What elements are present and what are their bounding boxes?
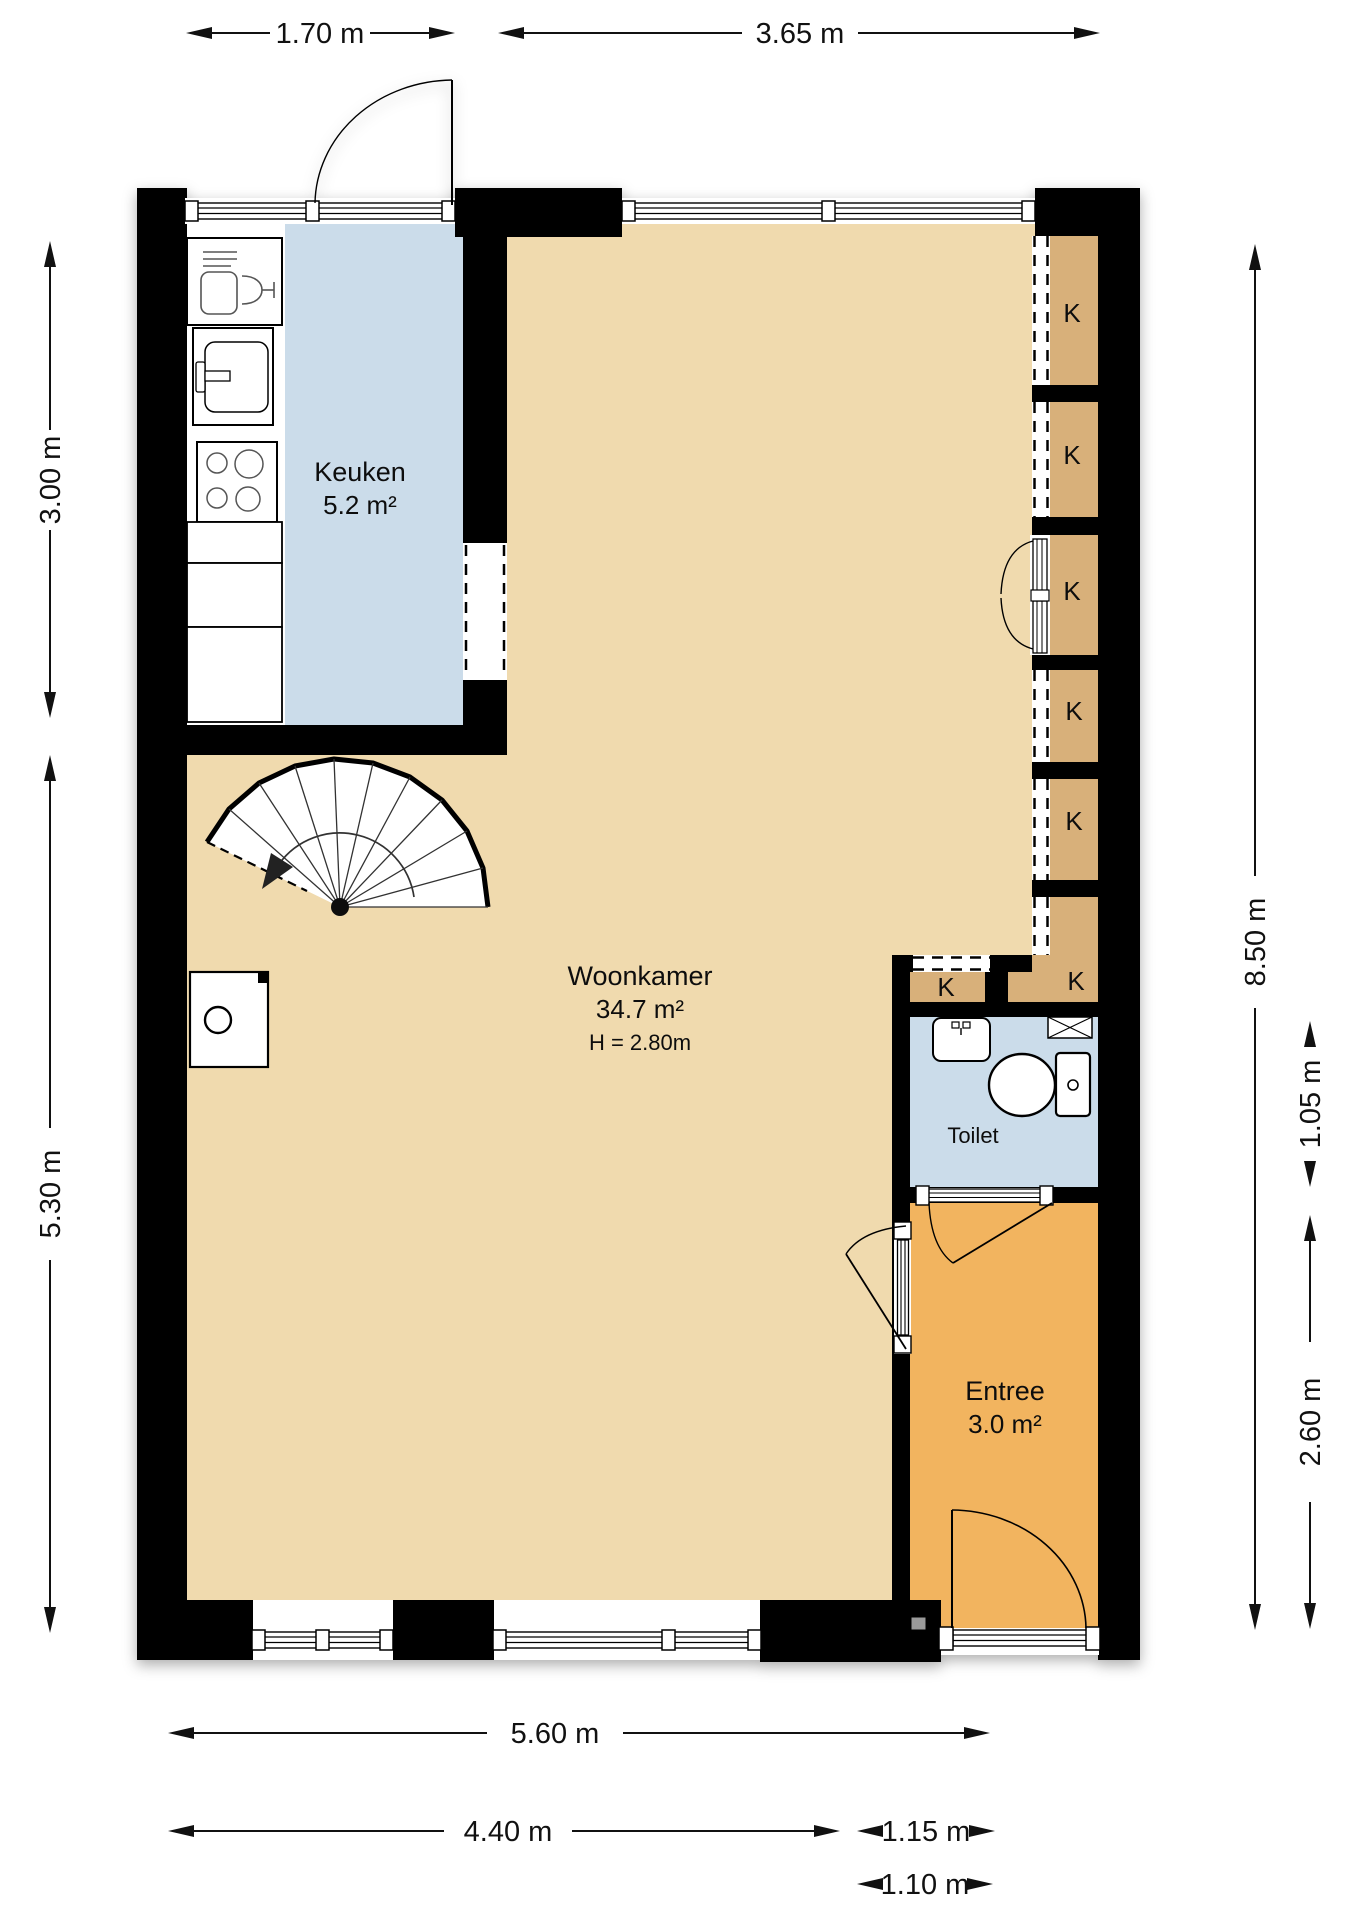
keuken-area: 5.2 m² — [323, 490, 397, 520]
wall-kitchen-bottom — [187, 725, 507, 755]
wall-top-right-corner — [1035, 188, 1140, 236]
window — [622, 201, 1035, 221]
woonkamer-area: 34.7 m² — [596, 994, 684, 1024]
dim-width-frontdoor: 1.10 m — [881, 1869, 970, 1901]
dim-width-kitchen: 1.70 m — [276, 18, 365, 50]
wall-toilet-top — [892, 1002, 1098, 1017]
floorplan-page: Keuken 5.2 m² Woonkamer 34.7 m² H = 2.80… — [0, 0, 1358, 1920]
wall-left — [137, 188, 187, 1660]
dim-width-entree: 1.15 m — [882, 1816, 971, 1848]
sink-icon — [933, 1018, 990, 1061]
toilet-label: Toilet — [947, 1123, 998, 1148]
closet-label: K — [1063, 298, 1081, 328]
kitchen-appliances — [187, 238, 282, 722]
woonkamer-label: Woonkamer — [567, 961, 712, 991]
floorplan-canvas: Keuken 5.2 m² Woonkamer 34.7 m² H = 2.80… — [0, 0, 1358, 1920]
closet-label: K — [1067, 966, 1085, 996]
entree-label: Entree — [965, 1376, 1045, 1406]
closet-label: K — [1065, 806, 1083, 836]
wood-stove-icon — [190, 972, 268, 1067]
dim-width-total: 5.60 m — [511, 1718, 600, 1750]
closet-label: K — [1063, 576, 1081, 606]
toilet-icon — [989, 1053, 1090, 1116]
woonkamer-ceiling-height: H = 2.80m — [589, 1030, 691, 1055]
closet-label: K — [1063, 440, 1081, 470]
closet-label: K — [1065, 696, 1083, 726]
room-floors — [187, 222, 1098, 1628]
meter-box — [911, 1617, 926, 1630]
stair-center-post — [331, 898, 349, 916]
dim-height-kitchen: 3.00 m — [35, 436, 67, 525]
balcony-door — [315, 80, 452, 205]
closet-label: K — [937, 972, 955, 1002]
dim-height-entree: 2.60 m — [1295, 1378, 1327, 1467]
dim-height-living: 5.30 m — [35, 1150, 67, 1239]
kitchen-counter — [187, 522, 282, 722]
kitchen-opening — [463, 543, 507, 680]
keuken-label: Keuken — [314, 457, 406, 487]
wall-bottom-right — [760, 1600, 941, 1662]
dim-width-living-bottom: 4.40 m — [464, 1816, 553, 1848]
wall-closet-sep — [1032, 385, 1098, 402]
stove-icon — [197, 442, 277, 522]
entree-area: 3.0 m² — [968, 1409, 1042, 1439]
wall-closet-sep — [1032, 880, 1098, 897]
wall-closet-sep — [1032, 517, 1098, 535]
wall-bottom-mid — [393, 1600, 494, 1660]
wall-closet-sep — [1032, 762, 1098, 779]
window — [185, 201, 455, 221]
windows-bottom — [252, 1600, 761, 1660]
dim-height-total: 8.50 m — [1240, 898, 1272, 987]
wall-right — [1098, 188, 1140, 1660]
dim-width-living-top: 3.65 m — [756, 18, 845, 50]
kitchen-sink-icon — [193, 328, 273, 425]
building: Keuken 5.2 m² Woonkamer 34.7 m² H = 2.80… — [137, 80, 1140, 1662]
dishwasher-icon — [187, 238, 282, 325]
wall-closet-sep — [1032, 655, 1098, 670]
wall-bottom-left-corner — [137, 1600, 253, 1660]
window — [252, 1630, 393, 1650]
window — [493, 1630, 761, 1650]
dim-height-toilet: 1.05 m — [1295, 1060, 1327, 1149]
